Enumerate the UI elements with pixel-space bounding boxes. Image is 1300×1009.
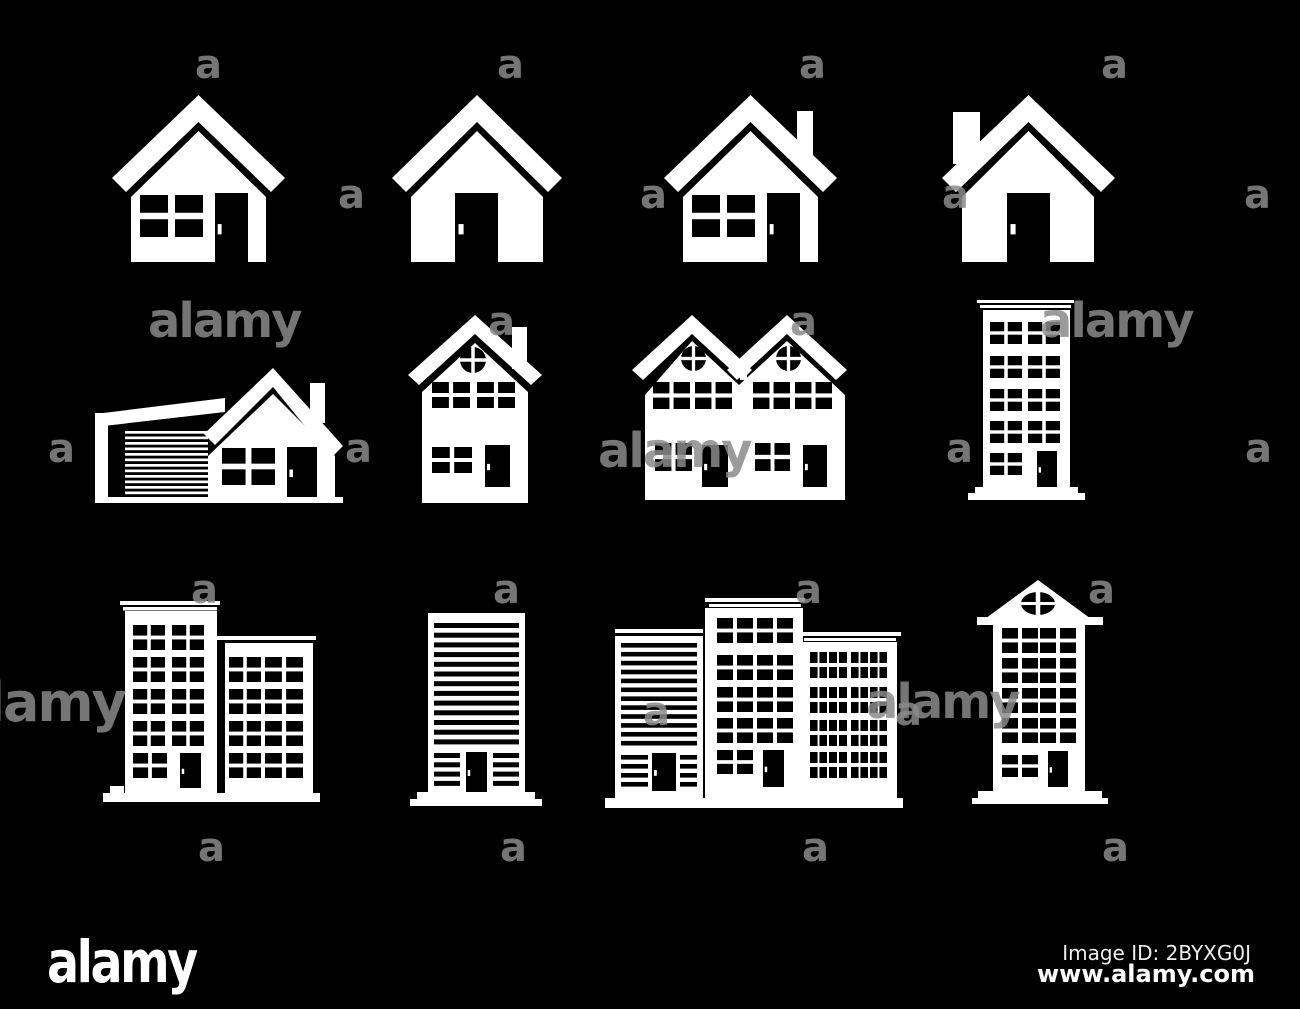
striped-tower-icon: [410, 613, 542, 806]
garage-door-stripes: [125, 431, 208, 494]
watermark-letter: a: [1101, 45, 1127, 85]
watermark-word: alamy: [148, 297, 301, 345]
watermark-letter: a: [493, 570, 519, 610]
watermark-word: alamy: [598, 427, 751, 475]
watermark-letter: a: [1102, 828, 1128, 868]
watermark-letter: a: [1088, 570, 1114, 610]
alamy-logo: alamy: [47, 933, 196, 991]
watermark-letter: a: [191, 570, 217, 610]
two-story-house-icon: [408, 315, 542, 503]
watermark-word: alamy: [866, 678, 1019, 726]
house-window-door-icon: [112, 95, 285, 262]
watermark-word: alamy: [1040, 297, 1193, 345]
watermark-letter: a: [500, 828, 526, 868]
watermark-letter: a: [497, 45, 523, 85]
watermark-letter: a: [1245, 429, 1271, 469]
watermark-letter: a: [488, 302, 514, 342]
watermark-letter: a: [195, 45, 221, 85]
watermark-letter: a: [799, 45, 825, 85]
watermark-letter: a: [1244, 175, 1270, 215]
website-text: www.alamy.com: [1037, 961, 1255, 987]
watermark-word: alamy: [0, 676, 125, 730]
stage: a a a a a a a a a a a a a a a a a a a a …: [0, 0, 1300, 1009]
watermark-letter: a: [946, 429, 972, 469]
watermark-letter: a: [942, 175, 968, 215]
house-chimney-window-icon: [664, 95, 837, 262]
watermark-letter: a: [198, 828, 224, 868]
office-building-icon: [103, 598, 320, 805]
watermark-letter: a: [48, 429, 74, 469]
watermark-letter: a: [795, 570, 821, 610]
watermark-letter: a: [790, 302, 816, 342]
watermark-letter: a: [643, 692, 669, 732]
watermark-letter: a: [345, 429, 371, 469]
watermark-letter: a: [640, 175, 666, 215]
watermark-letter: a: [338, 175, 364, 215]
house-doorway-icon: [392, 95, 562, 262]
watermark-letter: a: [802, 828, 828, 868]
house-with-garage-icon: [95, 368, 343, 503]
